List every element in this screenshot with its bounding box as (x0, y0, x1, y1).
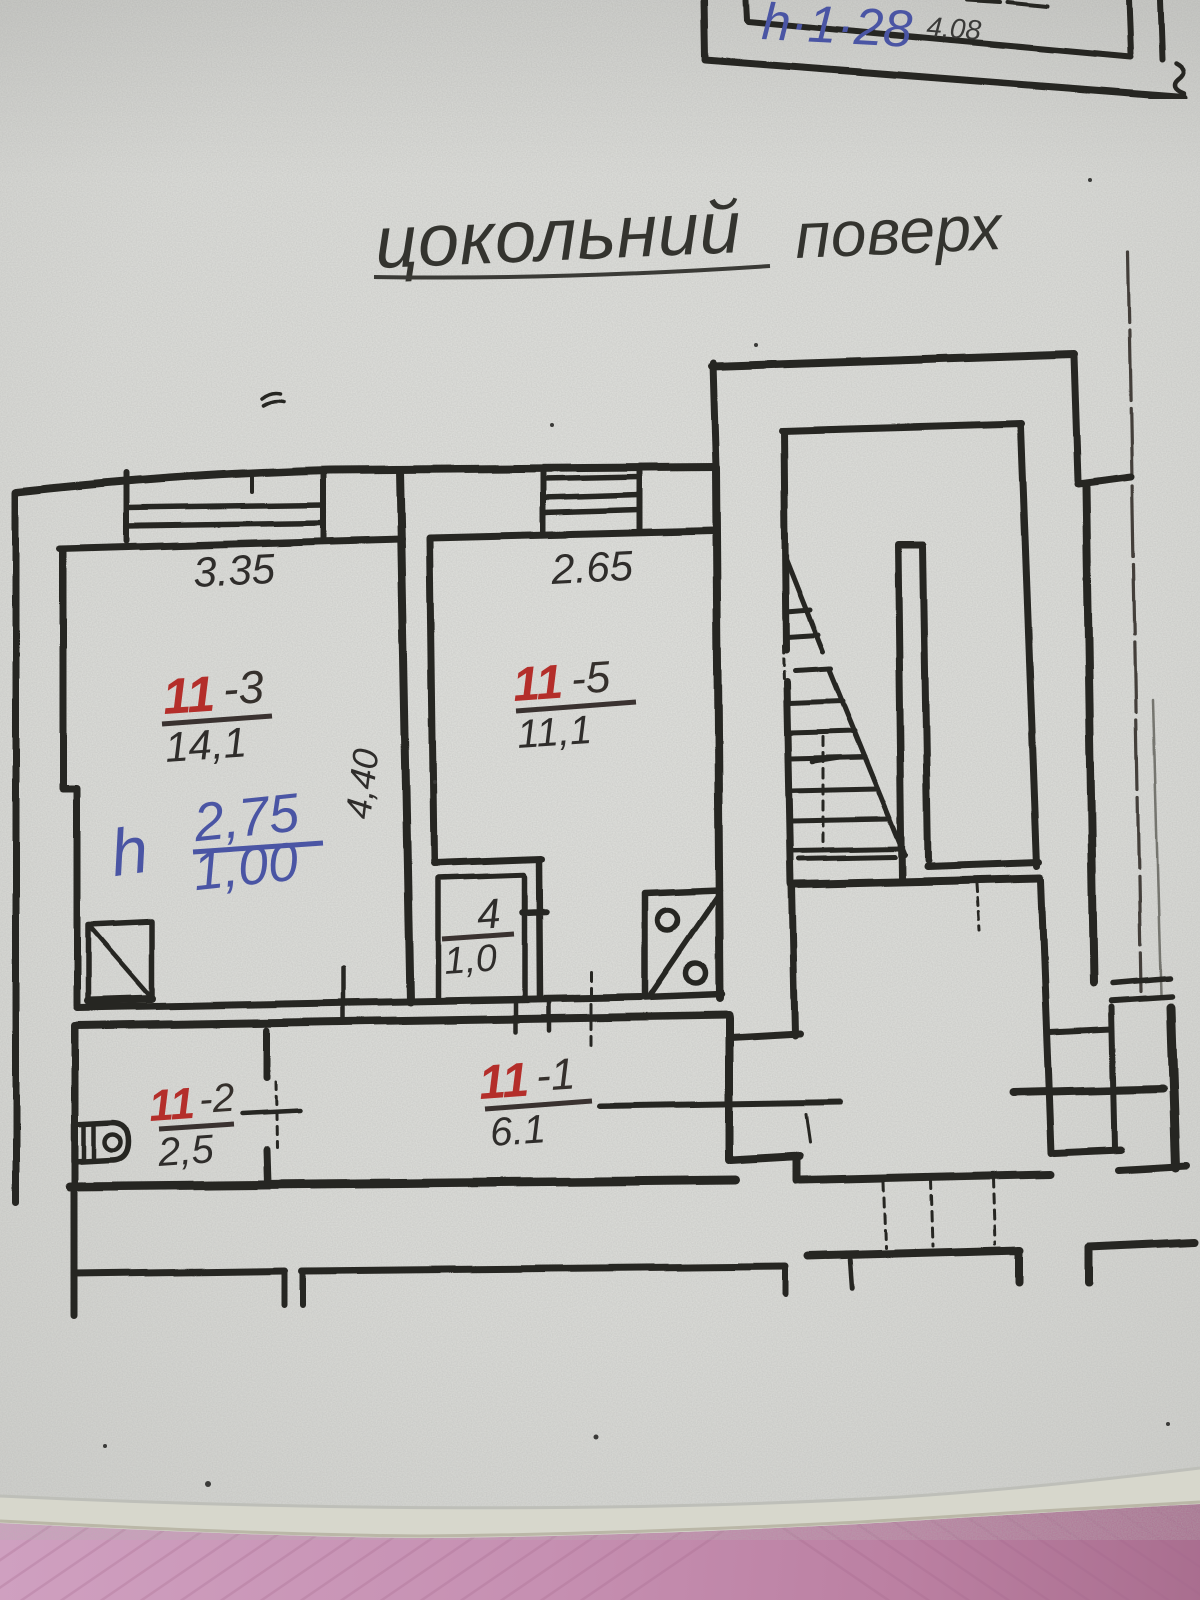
svg-text:поверх: поверх (793, 191, 1004, 272)
svg-text:11: 11 (477, 1054, 530, 1110)
svg-text:-3: -3 (221, 660, 266, 715)
svg-text:-1: -1 (534, 1049, 576, 1101)
svg-text:2,5: 2,5 (156, 1127, 216, 1175)
svg-text:4: 4 (475, 889, 502, 938)
svg-text:11,1: 11,1 (516, 708, 594, 757)
svg-text:3.35: 3.35 (192, 545, 277, 596)
svg-text:6.1: 6.1 (489, 1107, 548, 1155)
svg-text:1,0: 1,0 (443, 937, 499, 983)
svg-text:11: 11 (147, 1079, 196, 1131)
svg-text:2.65: 2.65 (549, 542, 635, 593)
svg-text:1,00: 1,00 (190, 831, 301, 902)
svg-text:h·1·28: h·1·28 (760, 0, 913, 59)
svg-text:4,40: 4,40 (337, 746, 386, 821)
svg-text:11: 11 (511, 656, 564, 712)
svg-text:14,1: 14,1 (163, 718, 248, 771)
svg-text:4.08: 4.08 (926, 11, 983, 46)
svg-text:-2: -2 (198, 1076, 237, 1122)
svg-text:11: 11 (161, 665, 217, 724)
svg-text:-5: -5 (569, 652, 612, 704)
